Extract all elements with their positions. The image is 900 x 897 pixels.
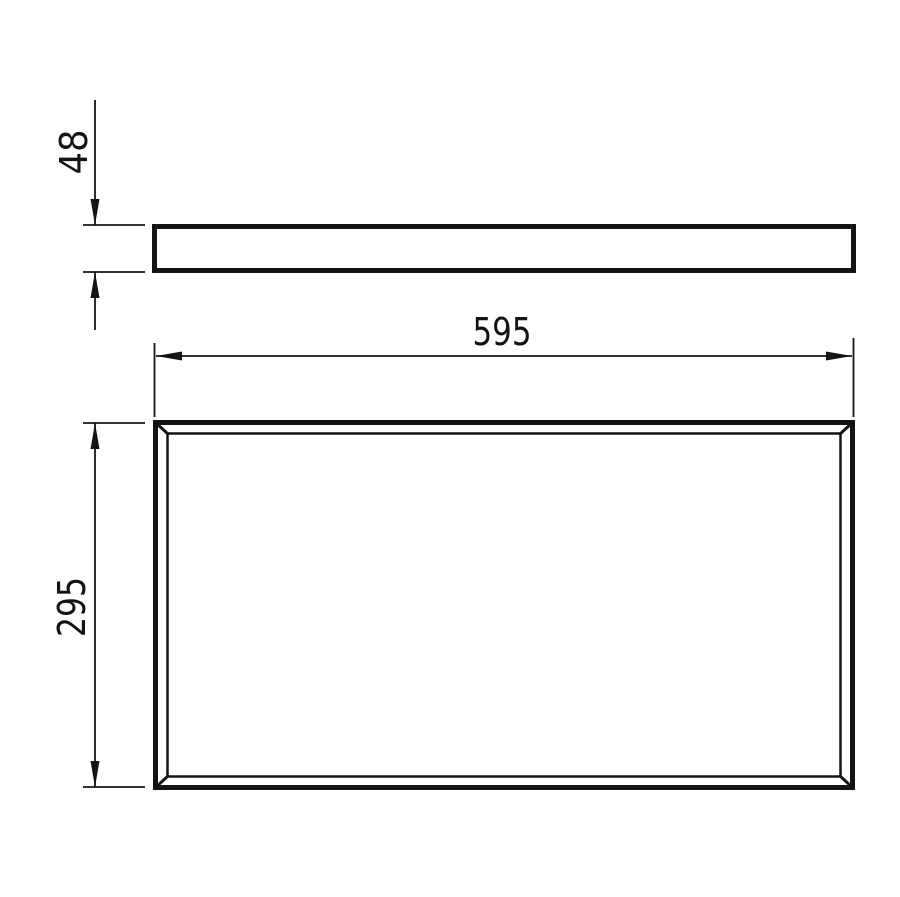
side-view-outline xyxy=(155,227,854,271)
thickness-dimension-label: 48 xyxy=(52,130,96,175)
width-dimension-label: 595 xyxy=(473,310,532,354)
height-dimension-label: 295 xyxy=(50,577,94,637)
front-view xyxy=(156,423,853,788)
technical-drawing: 48 595 295 xyxy=(0,0,900,897)
front-view-outer-frame xyxy=(156,423,853,788)
side-view xyxy=(155,227,854,271)
